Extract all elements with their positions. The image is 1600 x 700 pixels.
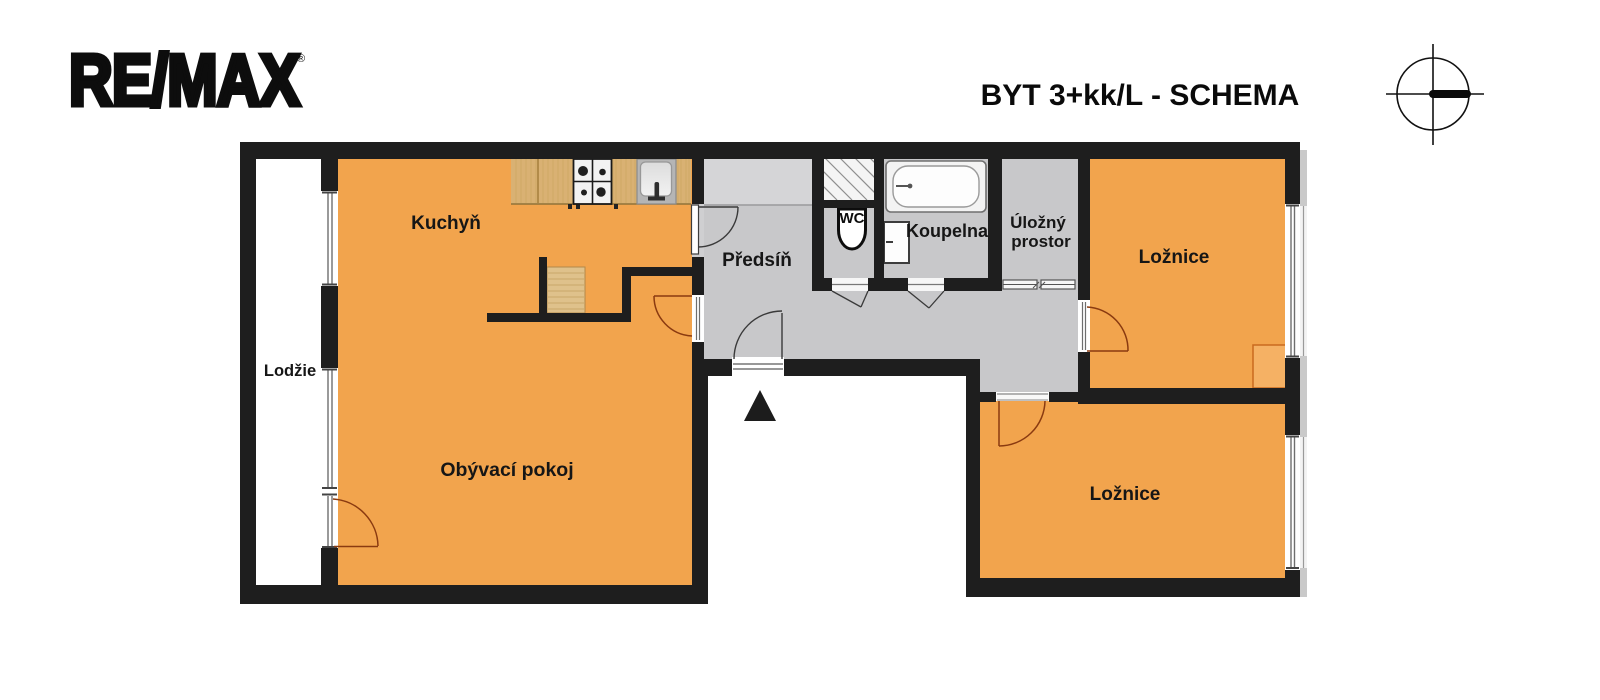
svg-text:Lodžie: Lodžie [264,362,316,380]
svg-text:Úložný: Úložný [1010,213,1066,232]
svg-text:Koupelna: Koupelna [906,221,989,241]
svg-text:BYT 3+kk/L - SCHEMA: BYT 3+kk/L - SCHEMA [981,79,1300,112]
svg-text:RE/MAX: RE/MAX [69,41,300,121]
svg-text:Předsíň: Předsíň [722,250,792,271]
svg-text:®: ® [297,53,305,65]
svg-text:WC: WC [840,210,865,227]
svg-text:Ložnice: Ložnice [1139,247,1210,268]
svg-text:Obývací pokoj: Obývací pokoj [440,459,573,481]
svg-text:Ložnice: Ložnice [1090,484,1161,505]
svg-text:prostor: prostor [1011,232,1071,251]
svg-text:Kuchyň: Kuchyň [411,213,481,234]
